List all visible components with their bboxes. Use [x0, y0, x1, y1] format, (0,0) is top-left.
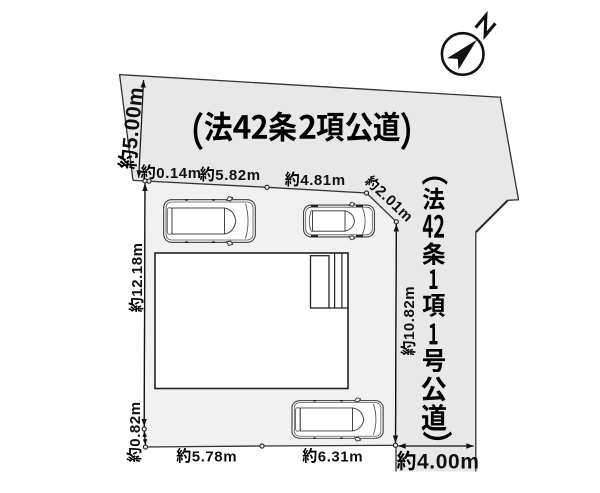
svg-text:5.82m: 5.82m	[215, 167, 260, 184]
svg-text:0.82m: 0.82m	[127, 401, 144, 446]
svg-text:6.31m: 6.31m	[318, 449, 363, 466]
svg-text:10.82m: 10.82m	[401, 286, 418, 340]
svg-text:4.00m: 4.00m	[417, 451, 480, 474]
svg-text:0.14m: 0.14m	[156, 165, 201, 182]
svg-text:4.81m: 4.81m	[300, 172, 345, 189]
svg-text:12.18m: 12.18m	[129, 243, 146, 297]
svg-text:5.78m: 5.78m	[192, 449, 237, 466]
